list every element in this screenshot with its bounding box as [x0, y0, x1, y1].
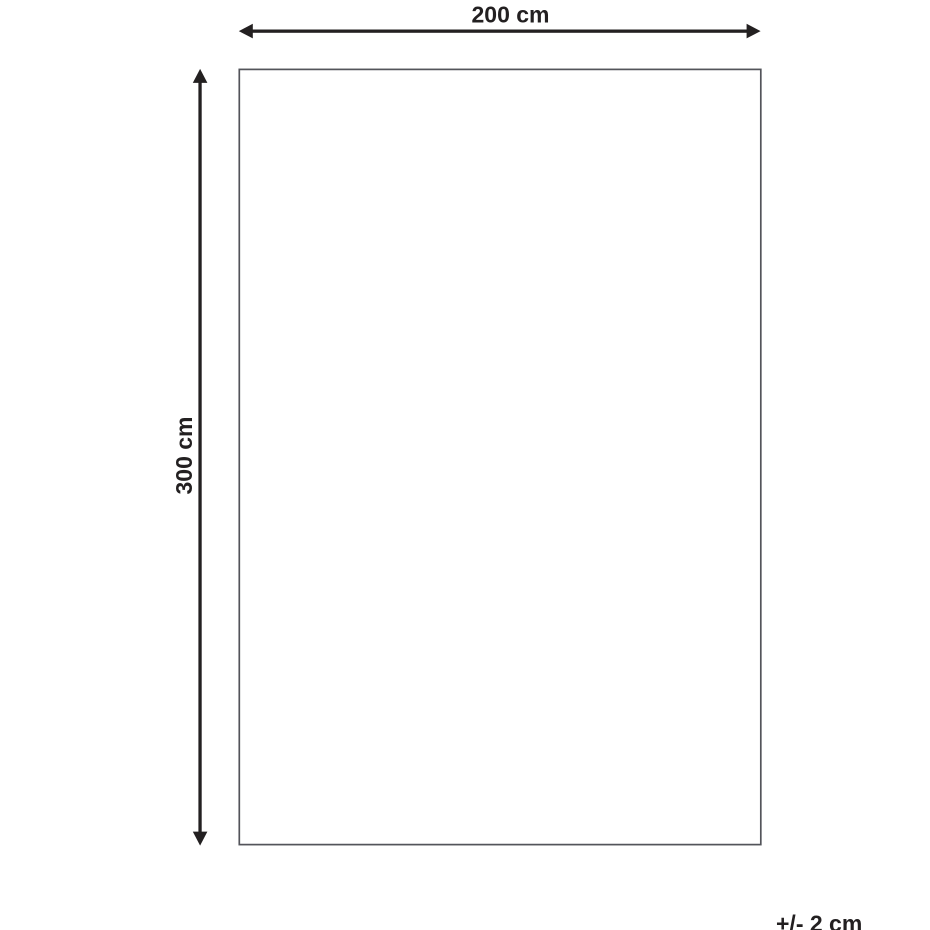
svg-text:200 cm: 200 cm: [471, 1, 549, 27]
svg-text:+/- 2 cm: +/- 2 cm: [776, 911, 862, 930]
svg-text:300 cm: 300 cm: [171, 416, 197, 494]
